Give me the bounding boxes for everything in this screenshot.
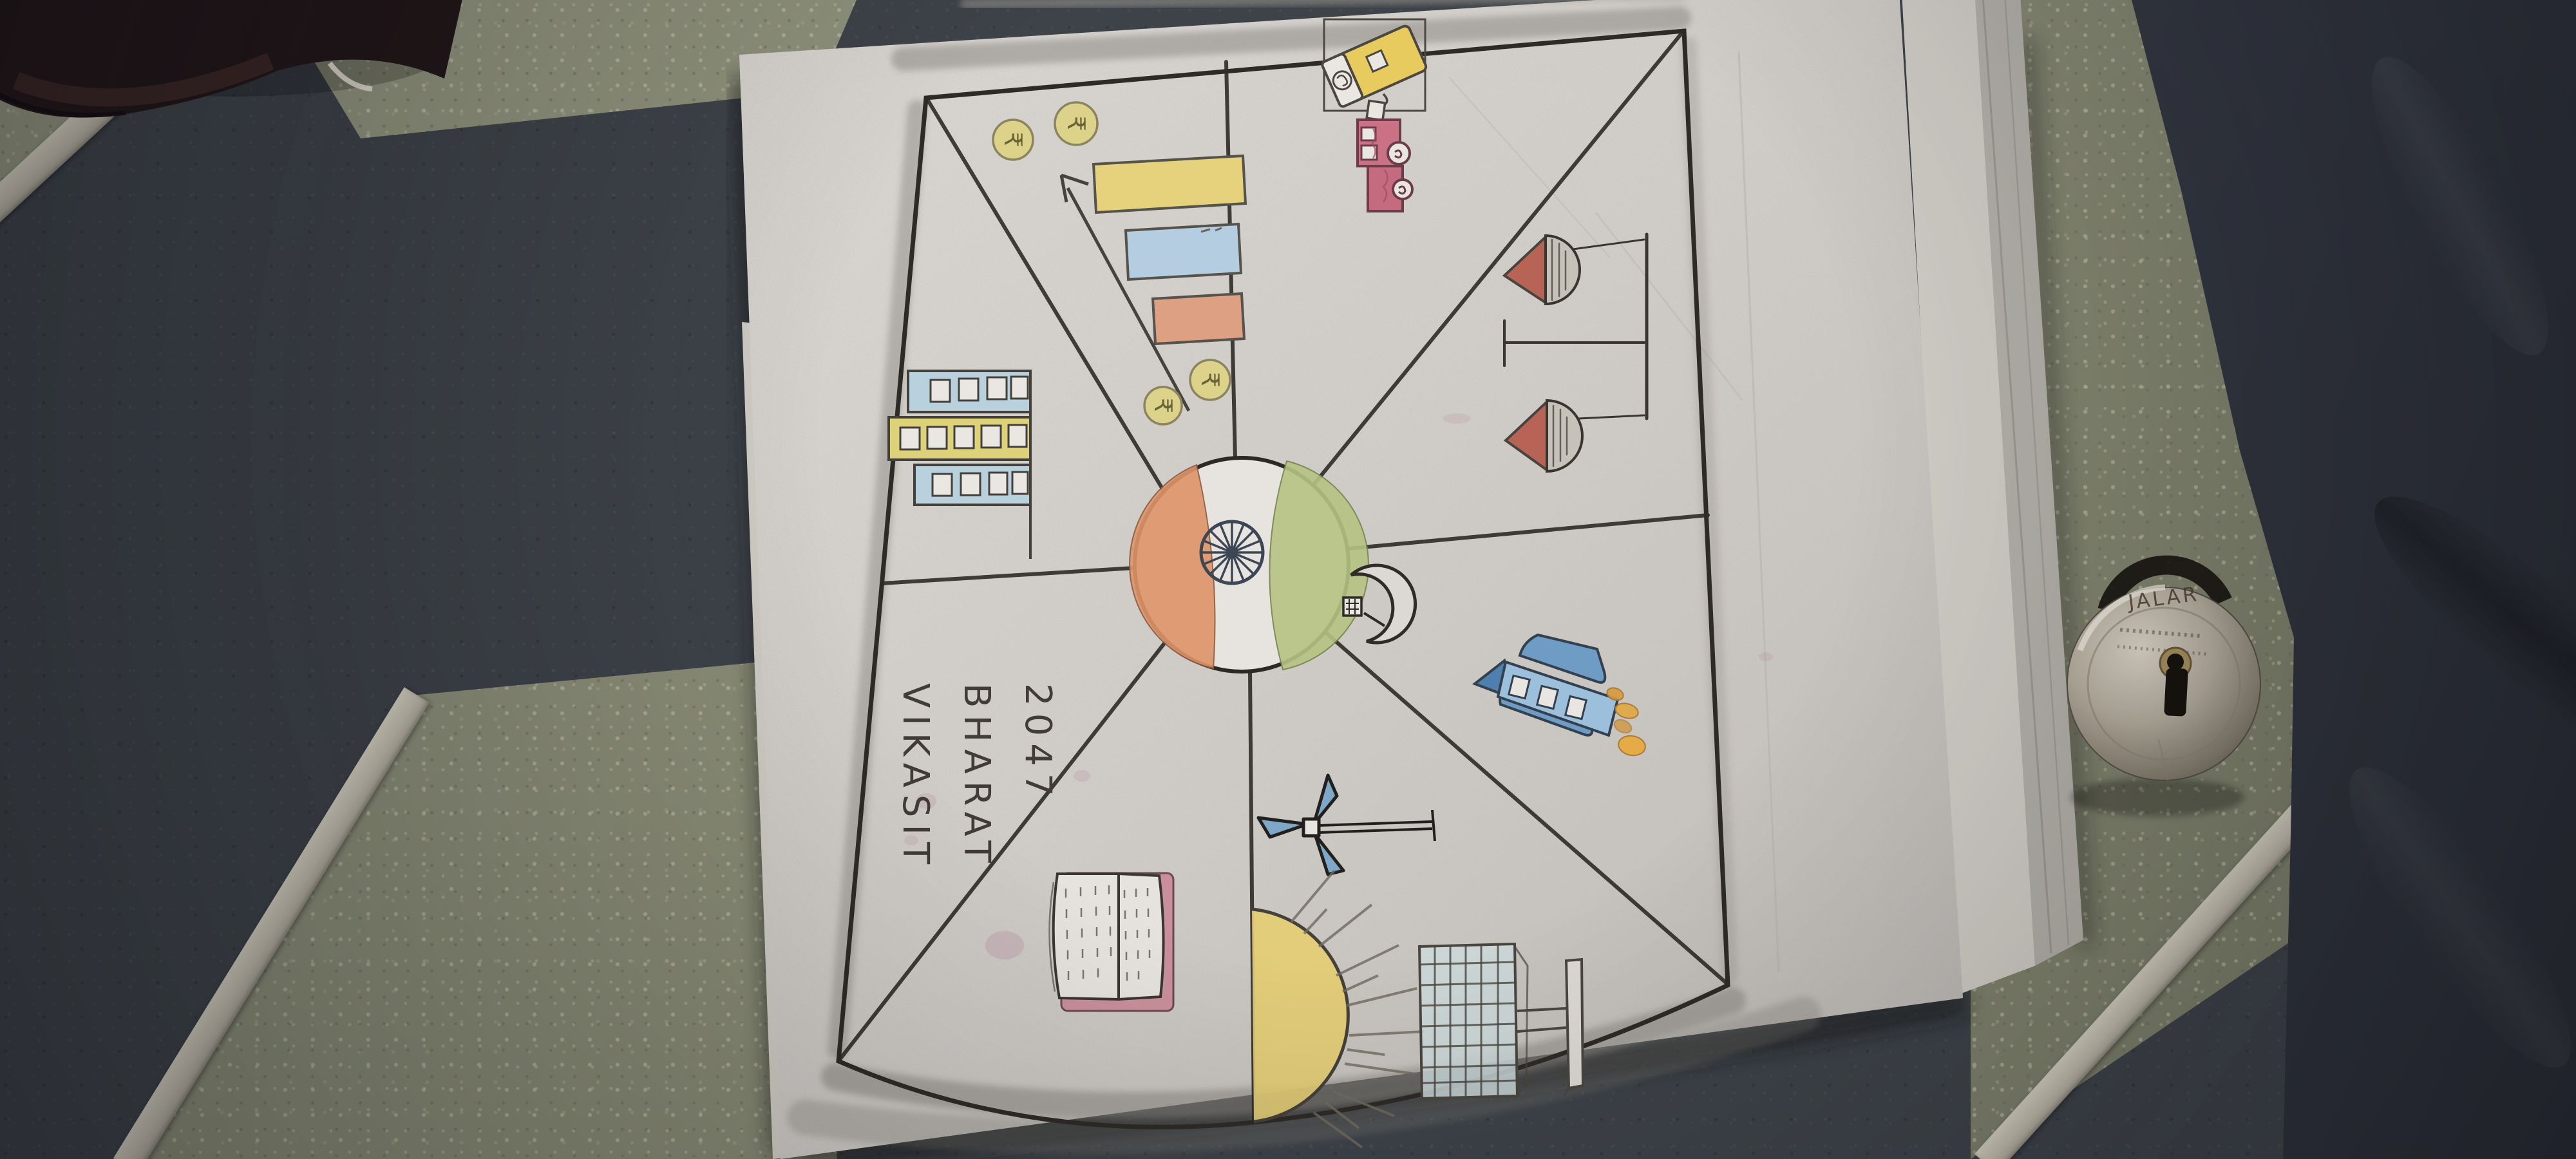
poster-title: 2047 BHARAT VIKASIT <box>882 683 1068 915</box>
rupee-symbol: ₹ <box>1149 398 1177 413</box>
padlock-body <box>2067 587 2260 780</box>
rupee-symbol: ₹ <box>1196 372 1224 388</box>
title-line-vikasit: VIKASIT <box>885 683 946 915</box>
moon-flag <box>1343 598 1361 616</box>
cable-plug <box>1367 100 1385 120</box>
title-line-bharat: BHARAT <box>946 683 1007 915</box>
title-line-2047: 2047 <box>1007 683 1068 915</box>
padlock: JALAR <box>2067 565 2260 816</box>
drawing-layer: ₹ ₹ ₹ ₹ <box>0 0 2576 1159</box>
rupee-symbol: ₹ <box>999 132 1027 147</box>
photo-scene: ₹ ₹ ₹ ₹ <box>0 0 2576 1159</box>
ashoka-chakra <box>1201 522 1263 583</box>
keyhole-slot <box>2164 668 2188 717</box>
india-flag-globe <box>1130 458 1368 672</box>
rupee-symbol: ₹ <box>1062 116 1090 131</box>
keyhole <box>2167 654 2184 670</box>
